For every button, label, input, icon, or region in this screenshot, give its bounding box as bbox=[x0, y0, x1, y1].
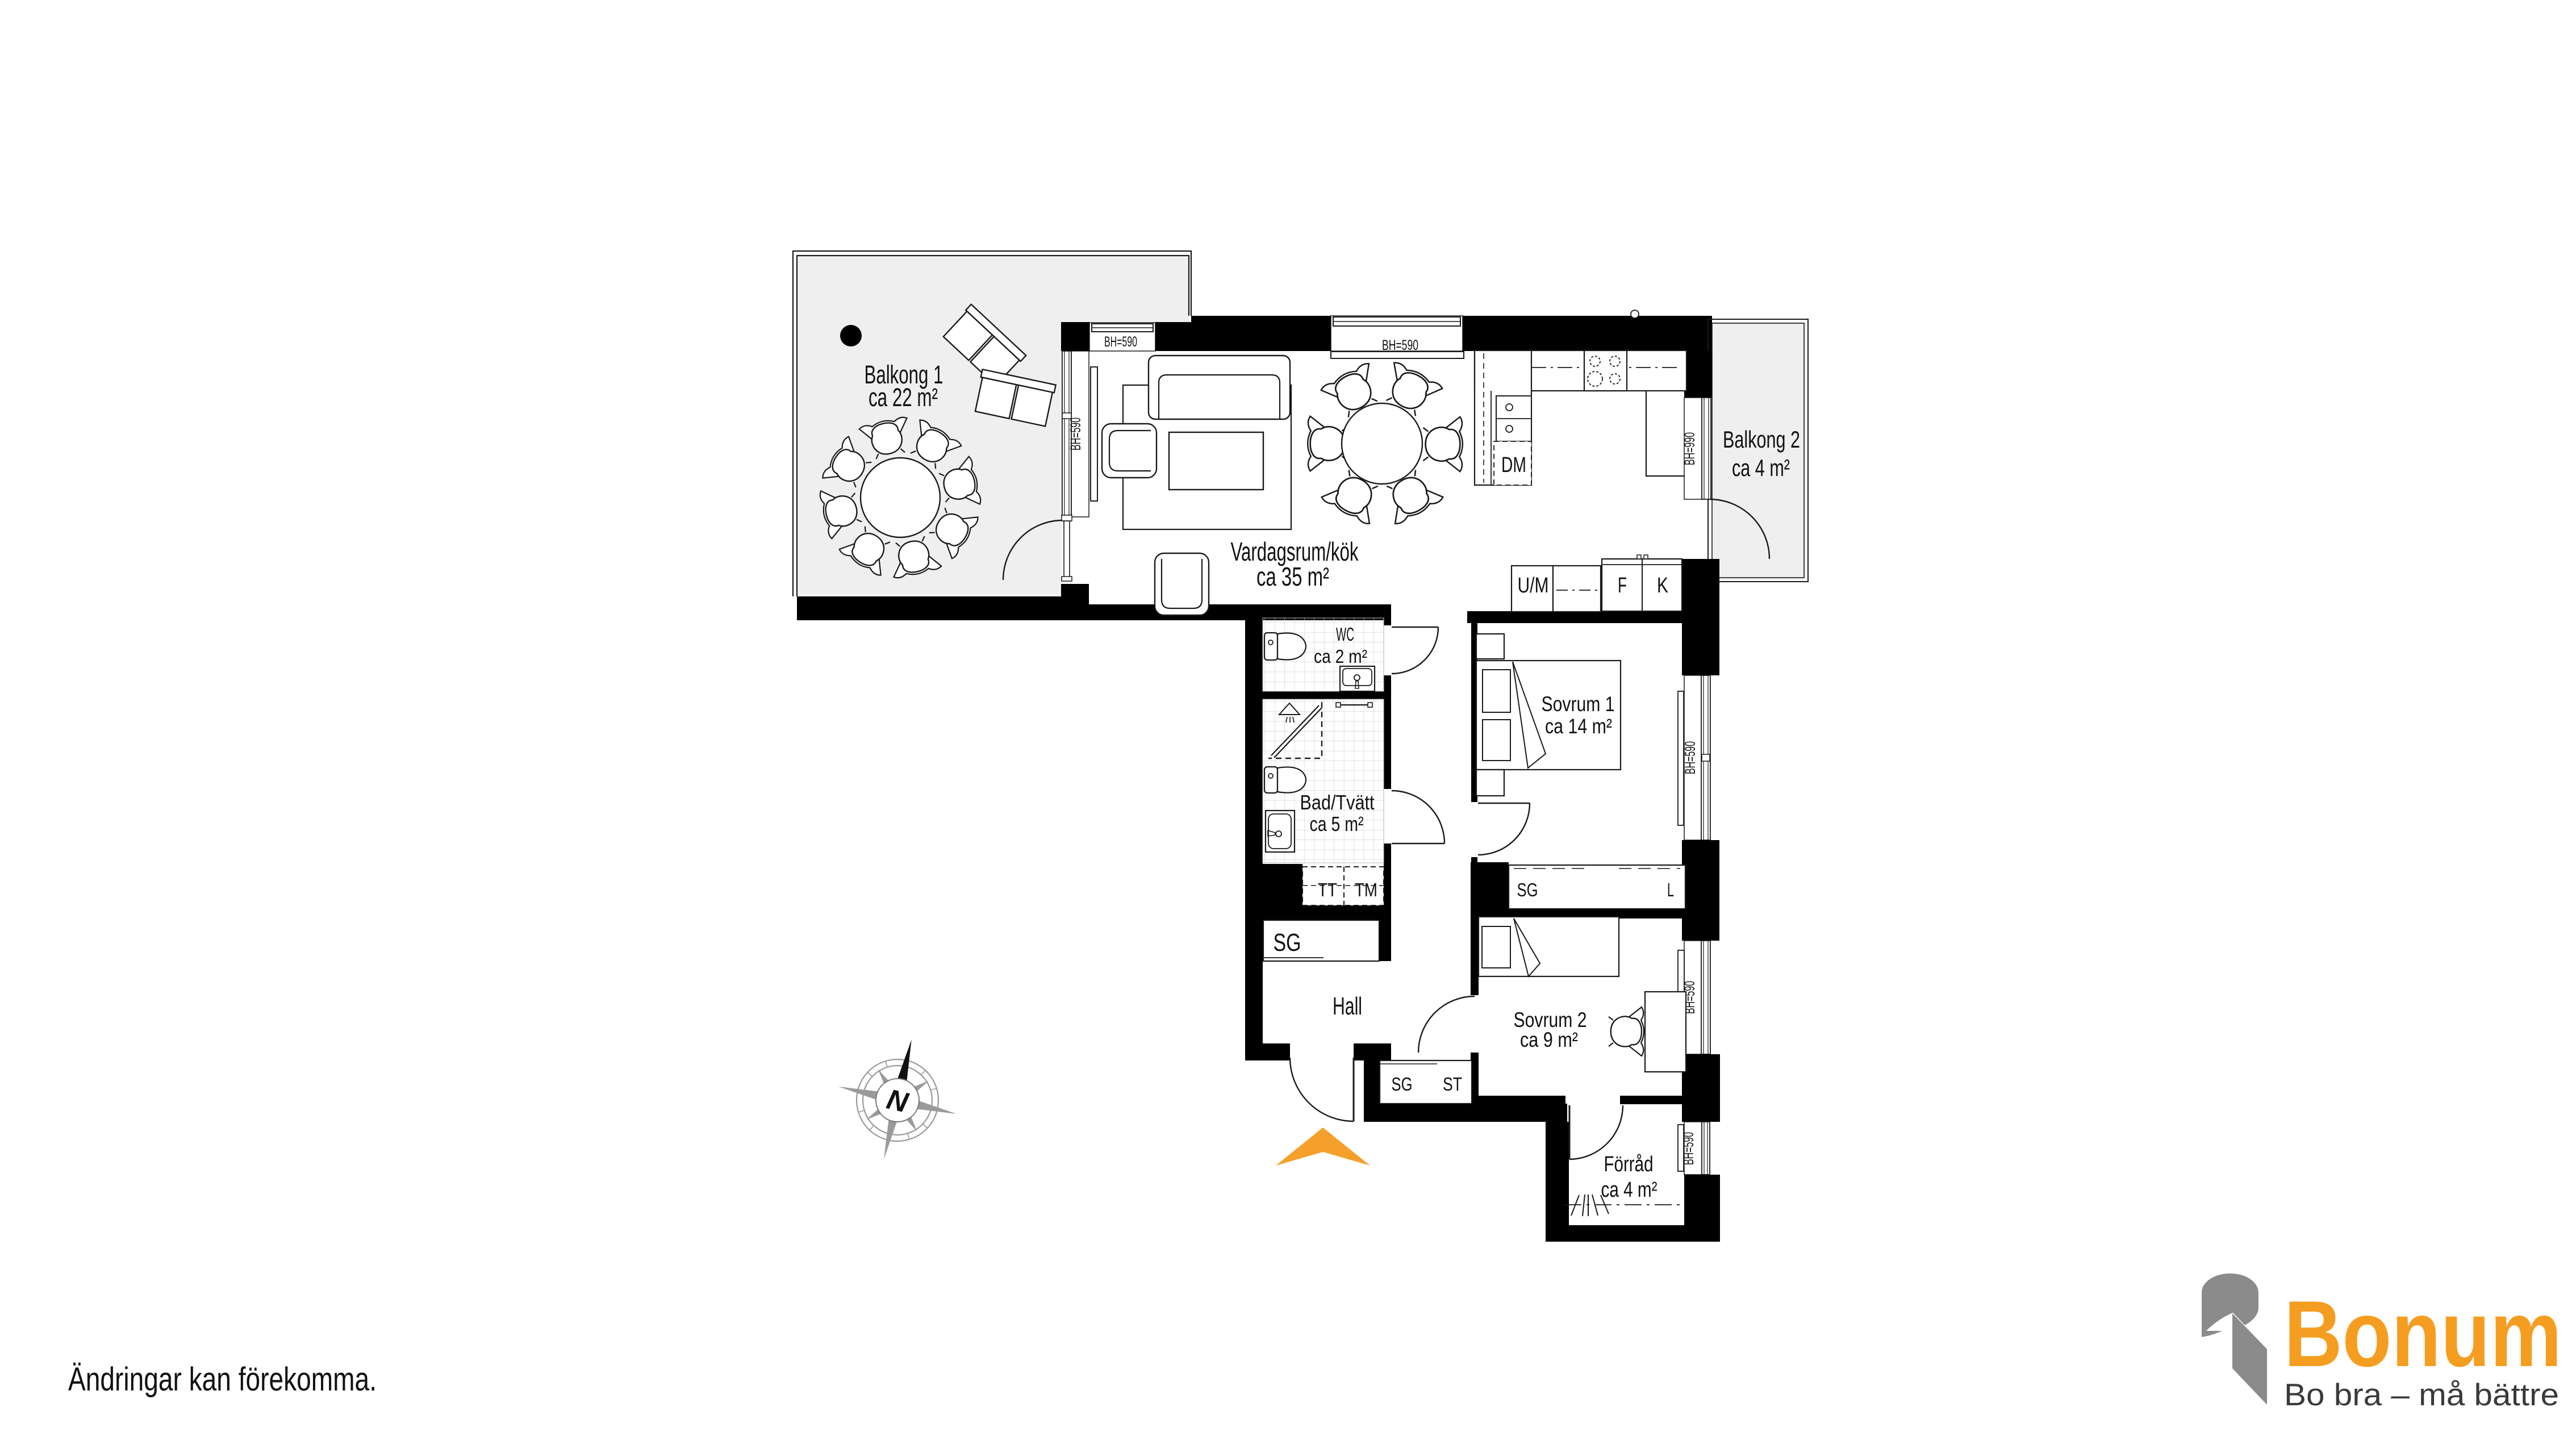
svg-text:Förråd: Förråd bbox=[1604, 1152, 1654, 1176]
svg-text:ca 5 m²: ca 5 m² bbox=[1310, 812, 1364, 836]
svg-text:SG: SG bbox=[1274, 929, 1301, 957]
svg-text:F: F bbox=[1618, 574, 1627, 598]
svg-text:SG: SG bbox=[1517, 879, 1538, 900]
svg-text:ca 4 m²: ca 4 m² bbox=[1732, 454, 1790, 481]
svg-text:Sovrum 1: Sovrum 1 bbox=[1542, 692, 1615, 716]
svg-text:Hall: Hall bbox=[1333, 992, 1362, 1020]
svg-text:WC: WC bbox=[1336, 624, 1354, 645]
svg-text:BH=590: BH=590 bbox=[1068, 417, 1084, 450]
svg-text:BH=590: BH=590 bbox=[1104, 334, 1137, 350]
svg-text:SG: SG bbox=[1392, 1074, 1413, 1095]
svg-text:ca 2 m²: ca 2 m² bbox=[1314, 646, 1367, 667]
svg-text:Bad/Tvätt: Bad/Tvätt bbox=[1300, 791, 1375, 814]
svg-text:ca 35 m²: ca 35 m² bbox=[1256, 562, 1329, 591]
svg-text:U/M: U/M bbox=[1518, 574, 1549, 598]
svg-text:BH=590: BH=590 bbox=[1682, 741, 1698, 774]
svg-text:ca 14 m²: ca 14 m² bbox=[1545, 715, 1612, 738]
svg-text:BH=590: BH=590 bbox=[1382, 337, 1418, 353]
svg-text:ST: ST bbox=[1443, 1074, 1462, 1095]
svg-text:K: K bbox=[1657, 574, 1668, 598]
svg-text:TT: TT bbox=[1318, 879, 1337, 900]
svg-text:ca 4 m²: ca 4 m² bbox=[1601, 1178, 1658, 1202]
svg-text:Bonum: Bonum bbox=[2284, 1281, 2562, 1386]
svg-text:Bo bra – må bättre: Bo bra – må bättre bbox=[2284, 1377, 2559, 1412]
svg-text:ca 22 m²: ca 22 m² bbox=[869, 383, 938, 412]
svg-text:Balkong 2: Balkong 2 bbox=[1723, 426, 1800, 453]
svg-text:TM: TM bbox=[1355, 879, 1377, 900]
svg-text:Ändringar kan förekomma.: Ändringar kan förekomma. bbox=[68, 1361, 377, 1398]
svg-text:L: L bbox=[1667, 879, 1674, 900]
svg-text:ca 9 m²: ca 9 m² bbox=[1520, 1028, 1578, 1051]
svg-text:BH=990: BH=990 bbox=[1682, 432, 1698, 465]
svg-text:DM: DM bbox=[1501, 453, 1526, 477]
